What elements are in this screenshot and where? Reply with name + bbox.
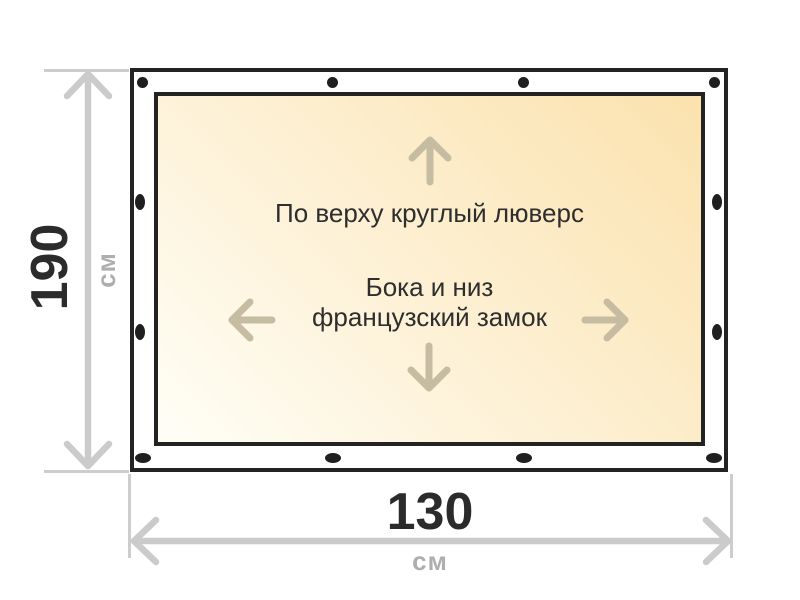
french-lock-slot-icon — [712, 194, 722, 210]
arrow-down-icon — [403, 340, 455, 396]
note-sides-line1: Бока и низ — [154, 272, 705, 302]
dimension-diagram: По верху круглый люверс Бока и низ франц… — [0, 0, 800, 600]
height-value: 190 — [23, 182, 77, 352]
french-lock-slot-icon — [325, 453, 341, 463]
round-grommet-icon — [327, 77, 338, 88]
note-top-edge: По верху круглый люверс — [154, 198, 705, 228]
french-lock-slot-icon — [706, 453, 722, 463]
arrow-up-icon — [404, 132, 456, 188]
height-unit: см — [92, 238, 120, 302]
width-unit: см — [355, 547, 505, 575]
french-lock-slot-icon — [712, 324, 722, 340]
note-sides-line2: французский замок — [154, 302, 705, 332]
round-grommet-icon — [518, 77, 529, 88]
round-grommet-icon — [137, 77, 148, 88]
french-lock-slot-icon — [135, 453, 151, 463]
french-lock-slot-icon — [135, 324, 145, 340]
round-grommet-icon — [709, 77, 720, 88]
french-lock-slot-icon — [135, 194, 145, 210]
french-lock-slot-icon — [516, 453, 532, 463]
width-value: 130 — [330, 485, 530, 539]
